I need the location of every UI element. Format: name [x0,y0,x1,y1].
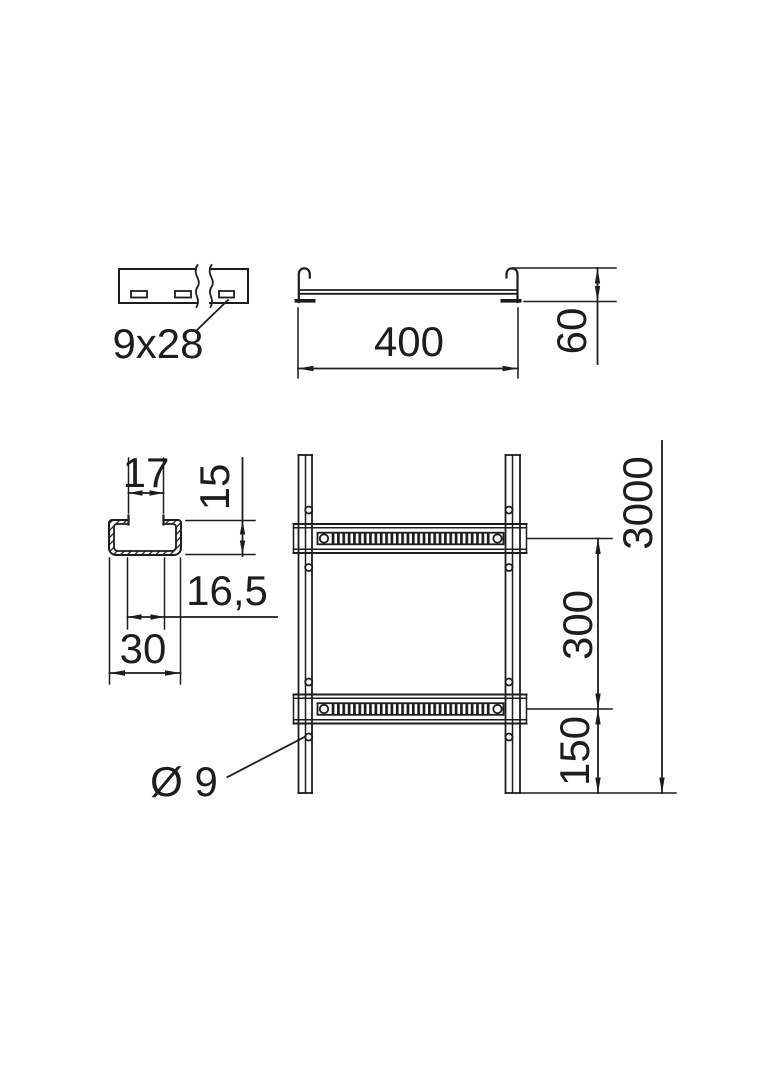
slot [131,291,147,298]
dimension-end-spacing-150: 150 [551,709,601,793]
arrowhead-up [240,521,245,535]
rail-hole [305,507,312,514]
profile-width-label: 30 [120,625,167,672]
rung [294,695,527,724]
width-label: 400 [374,318,444,365]
length-label: 3000 [614,456,661,549]
dimension-profile-width-30: 30 [110,558,181,684]
height-label: 60 [548,308,595,355]
profile-inner-outline [114,524,176,551]
profile-opening [130,516,163,526]
rung-perforation-slots [331,703,491,715]
dimension-rung-spacing-300: 300 [527,539,612,710]
strip-side-view: 9x28 [112,265,248,367]
inner-width-label: 16,5 [186,567,268,614]
hole-diameter-callout: Ø 9 [150,737,305,806]
hole-diameter-label: Ø 9 [150,758,218,805]
side-rail-left [299,268,310,302]
slot [219,291,234,298]
profile-height-label: 15 [191,464,238,511]
leader-line [228,737,306,778]
dimension-width-400: 400 [298,308,518,378]
arrowhead-up [595,268,600,284]
rung-perforation-slots [331,533,491,545]
rail-hole [506,507,513,514]
cross-section-view: 400 60 [295,268,617,378]
side-rail-right [507,268,518,302]
rail-hole [506,564,513,571]
rail-hole [506,679,513,686]
rung-spacing-label: 300 [554,590,601,660]
rung-end-hole [320,534,328,542]
dimension-height-60: 60 [513,268,616,364]
arrowhead-right [165,670,181,675]
rung [294,524,527,553]
slot [175,291,191,298]
rail-hole [506,734,513,741]
rail-hole [305,679,312,686]
arrowhead-down [595,694,600,710]
arrowhead-left [298,366,314,371]
end-spacing-label: 150 [551,716,598,786]
drawing-page: 9x28 400 60 [0,0,784,1066]
rail-left [299,455,313,793]
rung-profile-view: 17 15 16,5 30 [109,449,277,684]
technical-drawing: 9x28 400 60 [0,0,784,1066]
rail-hole [305,564,312,571]
arrowhead-up [595,539,600,555]
slot-size-label: 9x28 [112,320,203,367]
arrowhead-down [659,778,664,794]
rung-end-hole [320,705,328,713]
opening-width-label: 17 [123,449,170,496]
dimension-inner-width-16-5: 16,5 [128,558,278,629]
break-line-right [210,265,213,307]
arrowhead-down [240,541,245,555]
break-line-left [196,265,199,307]
dimension-profile-height-15: 15 [186,458,255,556]
rung-end-hole [493,534,501,542]
arrowhead-right [503,366,519,371]
arrowhead-right [151,614,165,619]
dimension-opening-17: 17 [123,449,170,513]
arrowhead-left [128,614,142,619]
arrowhead-down [595,286,600,302]
rail-right [506,455,521,793]
rung-end-hole [493,705,501,713]
